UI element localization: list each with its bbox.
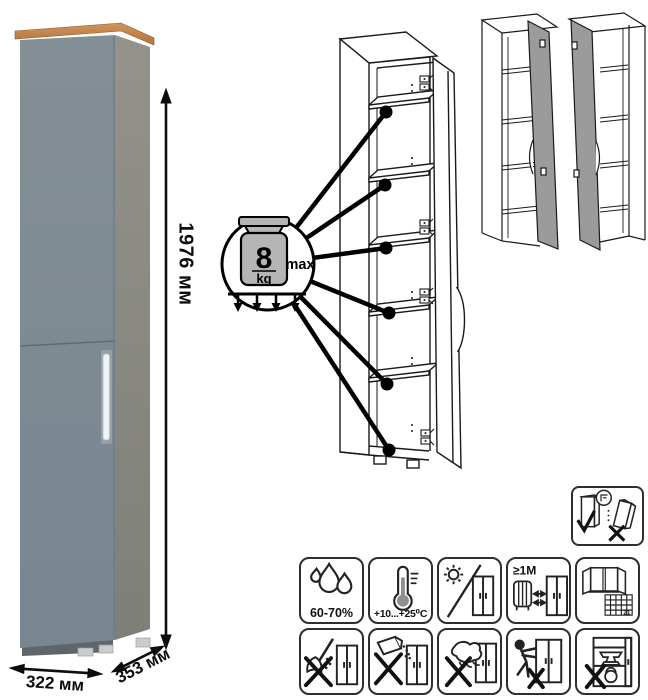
distance-from-heat-icon-cell: ≥1M [506, 557, 571, 624]
no-abrasive-sponge-icon-cell [437, 628, 502, 695]
height-arrowhead-top [161, 89, 171, 103]
door-handle [103, 354, 110, 440]
load-limit-badge: 8 kg max [222, 217, 315, 312]
cabinet-photo [15, 23, 154, 656]
variant-door-handle [596, 141, 600, 175]
shelf-pin-holes [411, 84, 413, 432]
temperature-icon-cell: +10...+25⁰C [368, 557, 433, 624]
no-dragging-icon-cell [506, 628, 571, 695]
no-axe-icon [303, 633, 361, 691]
door-handle-notch [457, 287, 465, 352]
anvil-icon [600, 652, 621, 665]
no-drag-person-icon [510, 633, 568, 691]
x-mark [375, 654, 400, 683]
hinge-icon [420, 288, 433, 304]
hinge-icon [420, 75, 433, 91]
anchor-to-wall-icon-cell [571, 486, 644, 546]
load-unit: kg [256, 271, 271, 286]
no-sharp-tools-icon-cell [299, 628, 364, 695]
foot [99, 645, 113, 653]
no-sponge-hand-icon [441, 633, 499, 691]
height-dimension-label: 1976 мм [174, 222, 197, 305]
radiator-distance-icon: ≥1M [510, 562, 568, 620]
x-mark [586, 665, 603, 686]
care-icons-grid: 60-70% +10...+25⁰C ≥1M [299, 557, 640, 695]
no-overload-icon [579, 633, 637, 691]
kettlebell-icon [605, 667, 617, 682]
width-arrowhead-left [10, 664, 24, 673]
window-calendar-icon: 21 [579, 562, 637, 620]
open-door [433, 58, 465, 468]
width-arrowhead-right [88, 669, 102, 678]
hinge-icon [421, 429, 434, 445]
x-mark [446, 658, 469, 685]
shelves [369, 90, 438, 382]
temperature-label: +10...+25⁰C [370, 608, 431, 620]
calendar-day-label: 21 [623, 609, 630, 616]
variant-right-door [482, 14, 558, 249]
foot [78, 648, 93, 656]
humidity-label: 60-70% [301, 606, 362, 620]
cabinet-side-panel [115, 35, 150, 640]
product-infographic: 8 kg max [0, 0, 648, 700]
distance-label: ≥1M [512, 563, 535, 577]
width-dimension-label: 322 мм [25, 672, 85, 696]
humidity-icon-cell: 60-70% [299, 557, 364, 624]
no-overload-icon-cell [575, 628, 640, 695]
foot [136, 638, 150, 647]
callout-dots [379, 106, 396, 457]
variant-left-door [569, 13, 645, 250]
load-qualifier: max [285, 257, 314, 273]
variant-door-handle [530, 140, 534, 174]
no-direct-sunlight-icon-cell [437, 557, 502, 624]
anchor-to-wall-icon [574, 488, 642, 543]
no-abrasive-powder-icon-cell [368, 628, 433, 695]
sun-slash-wardrobe-icon [441, 562, 499, 620]
no-powder-icon [372, 633, 430, 691]
x-mark [609, 526, 624, 541]
ventilation-calendar-icon-cell: 21 [575, 557, 640, 624]
hinge-icon [420, 219, 433, 235]
